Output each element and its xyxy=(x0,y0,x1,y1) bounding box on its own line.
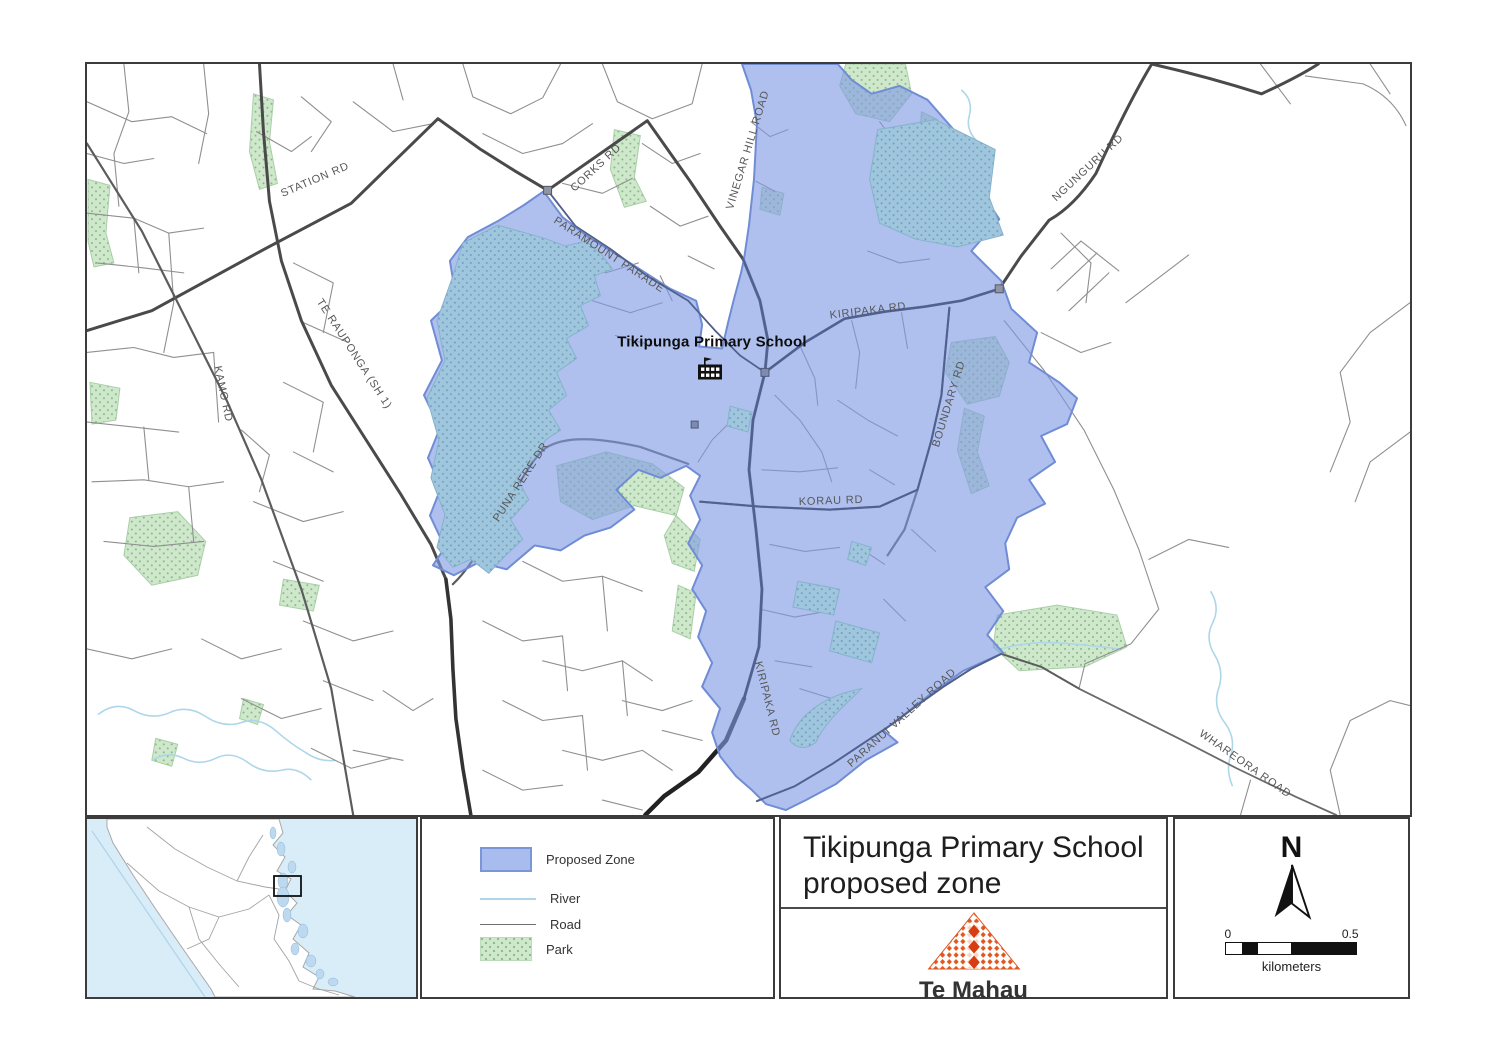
legend-label: Road xyxy=(550,917,581,932)
title-block: Tikipunga Primary School proposed zone T… xyxy=(779,817,1168,999)
north-arrow-icon xyxy=(1268,861,1316,921)
legend-item-proposed-zone: Proposed Zone xyxy=(480,847,635,872)
legend-item-park: Park xyxy=(480,937,573,961)
legend-label: River xyxy=(550,891,580,906)
legend-item-river: River xyxy=(480,891,580,906)
scale-bar: 0 0.5 kilometers xyxy=(1225,927,1359,974)
road-label-korau-rd: KORAU RD xyxy=(799,494,864,508)
scale-unit-label: kilometers xyxy=(1225,959,1359,974)
legend: Proposed Zone River Road Park xyxy=(420,817,775,999)
legend-label: Proposed Zone xyxy=(546,852,635,867)
title-divider xyxy=(781,907,1166,909)
main-map: STATION RD CORKS RD VINEGAR HILL ROAD PA… xyxy=(85,62,1412,817)
school-name-label: Tikipunga Primary School xyxy=(617,334,807,351)
te-mahau-logo-text: Te Mahau xyxy=(781,977,1166,1005)
scale-end-label: 0.5 xyxy=(1342,927,1359,941)
legend-label: Park xyxy=(546,942,573,957)
map-title-line1: Tikipunga Primary School xyxy=(803,831,1144,865)
scale-bar-segments xyxy=(1225,942,1357,955)
te-mahau-logo-icon xyxy=(924,911,1024,971)
road-swatch xyxy=(480,924,536,925)
map-document-page: STATION RD CORKS RD VINEGAR HILL ROAD PA… xyxy=(0,0,1497,1058)
park-swatch xyxy=(480,937,532,961)
te-mahau-logo: Te Mahau xyxy=(781,911,1166,1005)
river-swatch xyxy=(480,898,536,900)
proposed-zone-swatch xyxy=(480,847,532,872)
scale-start-label: 0 xyxy=(1225,927,1232,941)
school-icon xyxy=(697,357,723,381)
north-label: N xyxy=(1281,831,1303,865)
inset-map-canvas xyxy=(87,819,416,997)
legend-item-road: Road xyxy=(480,917,581,932)
north-scale-block: N 0 0.5 kilometers xyxy=(1173,817,1410,999)
inset-locator-map xyxy=(85,817,418,999)
map-title-line2: proposed zone xyxy=(803,867,1002,901)
map-canvas xyxy=(87,64,1410,815)
